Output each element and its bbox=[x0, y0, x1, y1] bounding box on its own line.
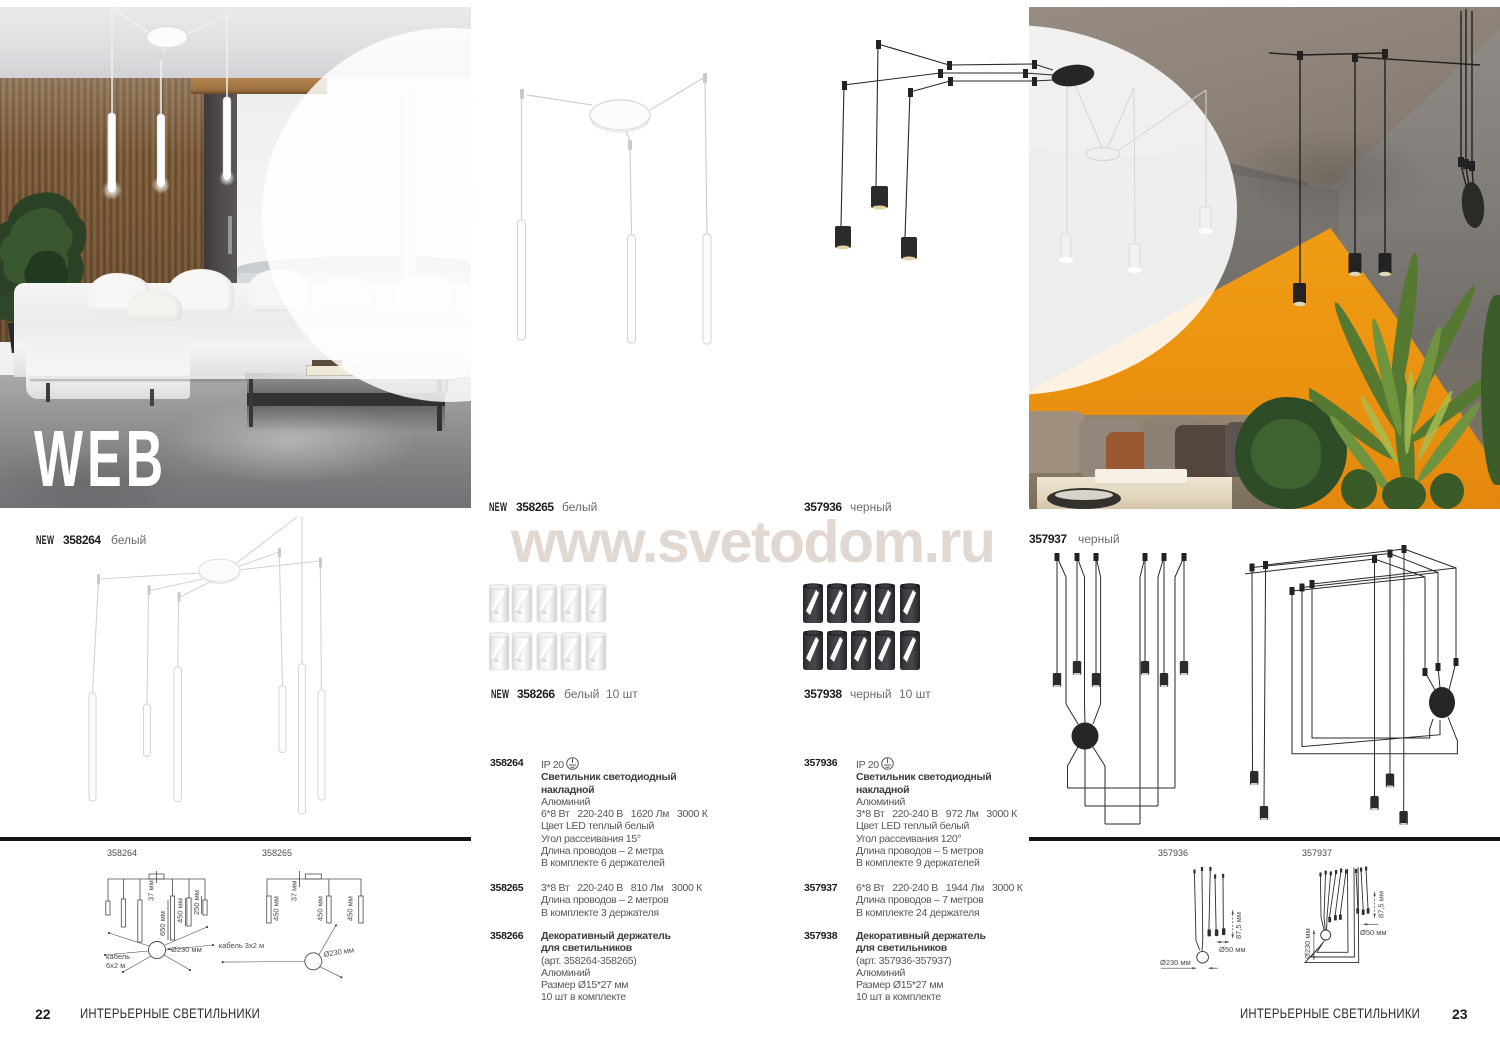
svg-text:358264: 358264 bbox=[107, 848, 137, 858]
svg-text:кабель: кабель bbox=[106, 952, 130, 961]
svg-text:650 мм: 650 мм bbox=[158, 911, 167, 936]
svg-text:Ø230 мм: Ø230 мм bbox=[1303, 928, 1312, 959]
svg-text:6х2 м: 6х2 м bbox=[106, 961, 125, 970]
svg-text:357936: 357936 bbox=[1158, 848, 1188, 858]
svg-text:450 мм: 450 мм bbox=[272, 896, 281, 921]
svg-text:кабель 3х2 м: кабель 3х2 м bbox=[219, 941, 264, 950]
svg-text:87,5 мм: 87,5 мм bbox=[1234, 912, 1243, 939]
svg-text:Ø230 мм: Ø230 мм bbox=[323, 945, 355, 959]
svg-text:37 мм: 37 мм bbox=[290, 881, 299, 902]
svg-text:450 мм: 450 мм bbox=[316, 896, 325, 921]
svg-text:357937: 357937 bbox=[1302, 848, 1332, 858]
svg-text:37 мм: 37 мм bbox=[147, 880, 156, 901]
svg-text:Ø50 мм: Ø50 мм bbox=[1360, 928, 1387, 937]
svg-text:Ø230 мм: Ø230 мм bbox=[1160, 958, 1191, 967]
svg-text:87,5 мм: 87,5 мм bbox=[1377, 891, 1386, 918]
svg-text:358265: 358265 bbox=[262, 848, 292, 858]
svg-text:450 мм: 450 мм bbox=[346, 896, 355, 921]
svg-text:Ø50 мм: Ø50 мм bbox=[1219, 945, 1246, 954]
